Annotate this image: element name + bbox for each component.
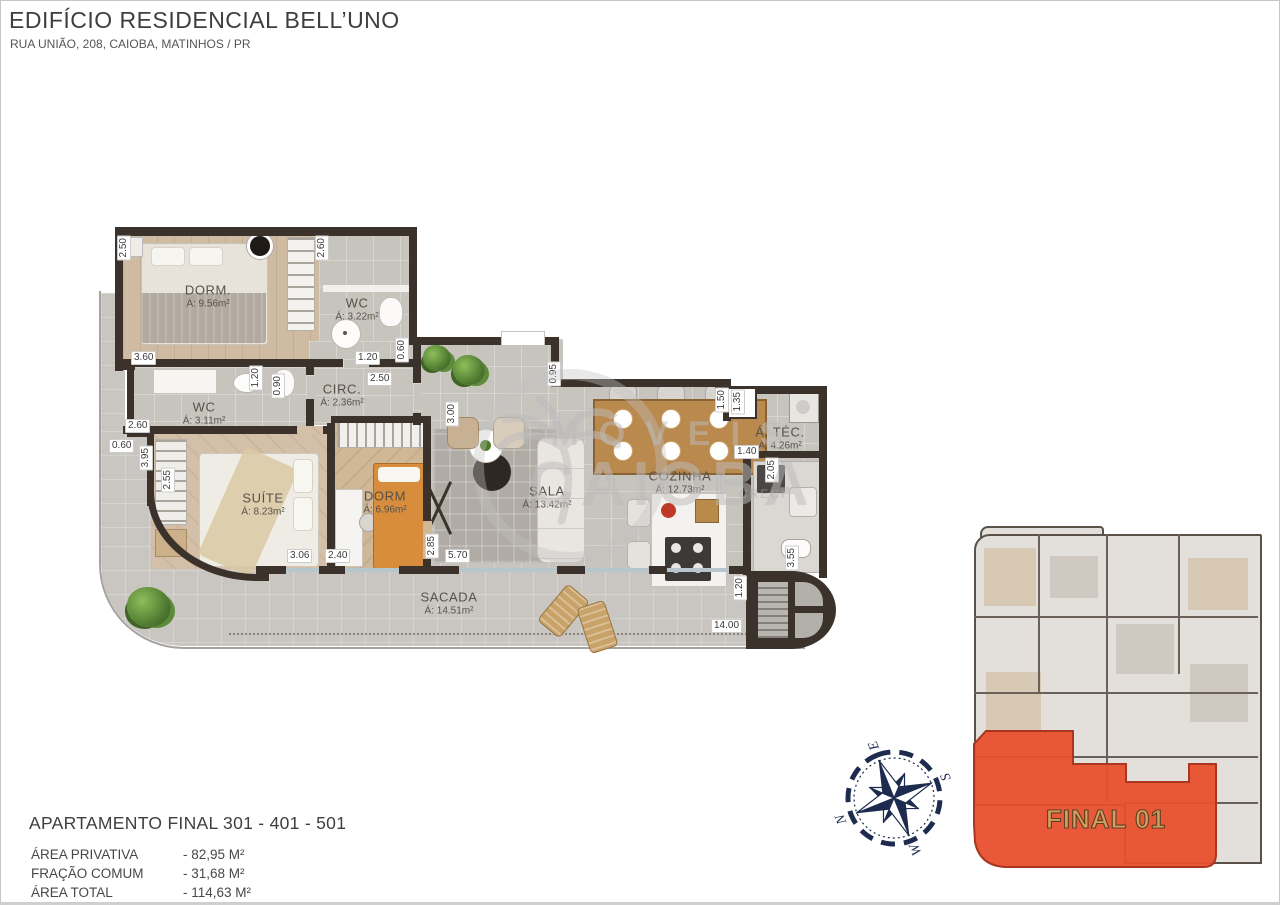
dimension-label: 2.60 — [125, 419, 150, 433]
compass-east-label: E — [866, 738, 884, 753]
stat-value: - 114,63 M² — [183, 885, 251, 900]
stat-value: - 82,95 M² — [183, 847, 245, 862]
dimension-label: 2.40 — [325, 549, 350, 563]
pillow — [293, 459, 313, 493]
room-label-dorm2: DORM Á: 6.96m² — [363, 489, 406, 516]
fruit-bowl — [661, 503, 676, 518]
plate — [661, 409, 681, 429]
wall-segment — [649, 566, 667, 574]
wall-segment — [399, 566, 459, 574]
dimension-label: 3.00 — [445, 401, 459, 426]
dimension-label: 2.60 — [315, 235, 329, 260]
pillow — [293, 497, 313, 531]
dimension-label: 1.35 — [731, 389, 745, 414]
cutting-board — [695, 499, 719, 523]
door-opening — [413, 383, 422, 413]
plate — [709, 441, 729, 461]
room-label-suite: SUÍTE Á: 8.23m² — [241, 491, 284, 518]
plant-icon — [127, 587, 171, 627]
building-title: EDIFÍCIO RESIDENCIAL BELL’UNO — [9, 7, 400, 34]
stat-value: - 31,68 M² — [183, 866, 245, 881]
compass-south-label: S — [938, 771, 955, 783]
shower-divider — [323, 285, 409, 292]
building-address: RUA UNIÃO, 208, CAIOBA, MATINHOS / PR — [10, 37, 251, 51]
wall-segment — [256, 566, 286, 574]
compass-rose-icon: N E S W — [832, 734, 956, 862]
wall-segment — [743, 451, 751, 575]
dimension-label: 3.55 — [785, 545, 799, 570]
wall-segment — [557, 566, 585, 574]
dimension-label: 1.20 — [733, 575, 747, 600]
door-opening — [306, 375, 315, 399]
dimension-label: 2.85 — [425, 533, 439, 558]
compass-north-label: N — [833, 811, 851, 827]
door-opening — [297, 426, 323, 435]
palm-tree-icon — [483, 379, 635, 531]
dimension-label: 0.60 — [109, 439, 134, 453]
dimension-label: 0.90 — [271, 373, 285, 398]
room-label-wc2: WC Á: 3.11m² — [183, 400, 226, 427]
dimension-label: 0.60 — [395, 337, 409, 362]
room-label-circ: CIRC. Á: 2.36m² — [320, 382, 363, 409]
wall-segment — [331, 416, 431, 423]
stool — [789, 487, 817, 517]
dimension-label: 5.70 — [445, 549, 470, 563]
stool — [627, 541, 651, 569]
vanity — [153, 369, 217, 394]
dimension-label: 2.50 — [117, 235, 131, 260]
stat-area-total: ÁREA TOTAL- 114,63 M² — [31, 885, 361, 900]
toilet — [379, 297, 403, 327]
dimension-label: 1.20 — [249, 365, 263, 390]
dimension-label: 14.00 — [711, 619, 742, 633]
pillow — [151, 247, 185, 266]
balcony-railing — [229, 633, 747, 635]
dimension-label: 1.50 — [715, 387, 729, 412]
washer-door — [796, 400, 810, 414]
dimension-label: 2.55 — [161, 467, 175, 492]
plate — [661, 441, 681, 461]
wardrobe — [337, 421, 427, 448]
keyplan: FINAL 01 — [966, 524, 1268, 876]
room-label-wc1: WC Á: 3.22m² — [335, 296, 378, 323]
dimension-label: 2.05 — [765, 457, 779, 482]
wall-segment — [115, 227, 417, 236]
wall-segment — [409, 227, 417, 345]
wardrobe — [287, 237, 315, 331]
dimension-label: 2.50 — [367, 372, 392, 386]
wall-segment — [319, 566, 345, 574]
burner — [671, 543, 681, 553]
stat-fracao-comum: FRAÇÃO COMUM- 31,68 M² — [31, 866, 361, 881]
room-label-cozinha: COZINHA Á: 12.73m² — [649, 469, 712, 496]
dimension-label: 3.95 — [139, 445, 153, 470]
stair-steps — [758, 582, 788, 638]
room-label-sacada: SACADA Á: 14.51m² — [420, 590, 477, 617]
pillow — [378, 467, 420, 482]
dimension-label: 3.60 — [131, 351, 156, 365]
dimension-label: 1.40 — [734, 445, 759, 459]
stat-area-privativa: ÁREA PRIVATIVA- 82,95 M² — [31, 847, 361, 862]
pillow — [189, 247, 223, 266]
plant-icon — [453, 355, 485, 385]
wall-segment — [819, 386, 827, 578]
plant-icon — [423, 345, 451, 371]
room-label-dorm1: DORM. Á: 9.56m² — [185, 283, 231, 310]
dimension-label: 3.06 — [287, 549, 312, 563]
sink-drain — [343, 331, 347, 335]
door-mat — [501, 331, 545, 346]
page: EDIFÍCIO RESIDENCIAL BELL’UNO RUA UNIÃO,… — [0, 0, 1280, 905]
dimension-label: 1.20 — [355, 351, 380, 365]
burner — [693, 543, 703, 553]
room-label-area-tecnica: Á. TÉC. Á: 4.26m² — [755, 425, 804, 452]
keyplan-unit-label: FINAL 01 — [1021, 804, 1191, 835]
speaker — [247, 233, 273, 259]
apartment-title: APARTAMENTO FINAL 301 - 401 - 501 — [29, 813, 346, 834]
